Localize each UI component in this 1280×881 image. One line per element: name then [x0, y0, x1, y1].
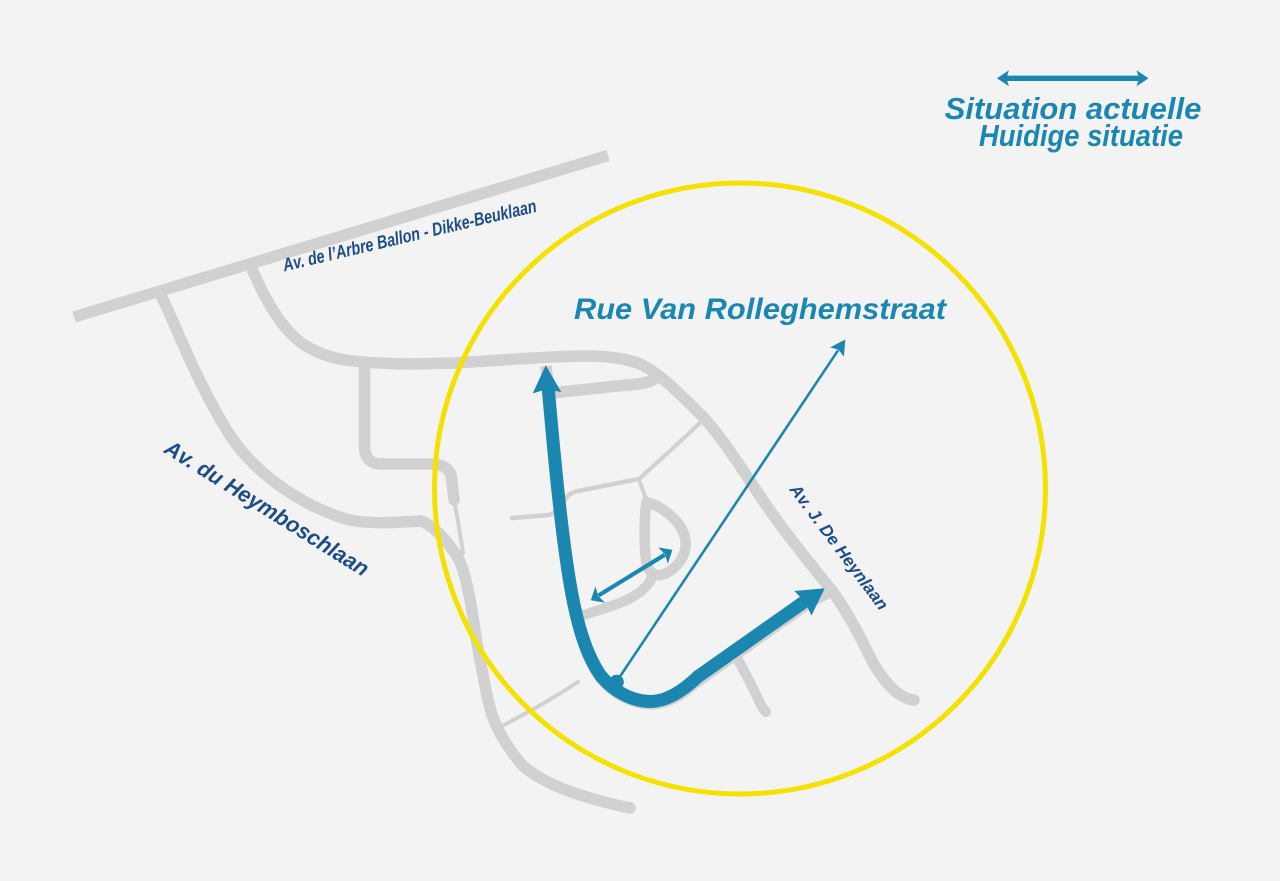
- svg-text:Rue Van Rolleghemstraat: Rue Van Rolleghemstraat: [574, 293, 948, 326]
- svg-text:Huidige situatie: Huidige situatie: [979, 118, 1183, 153]
